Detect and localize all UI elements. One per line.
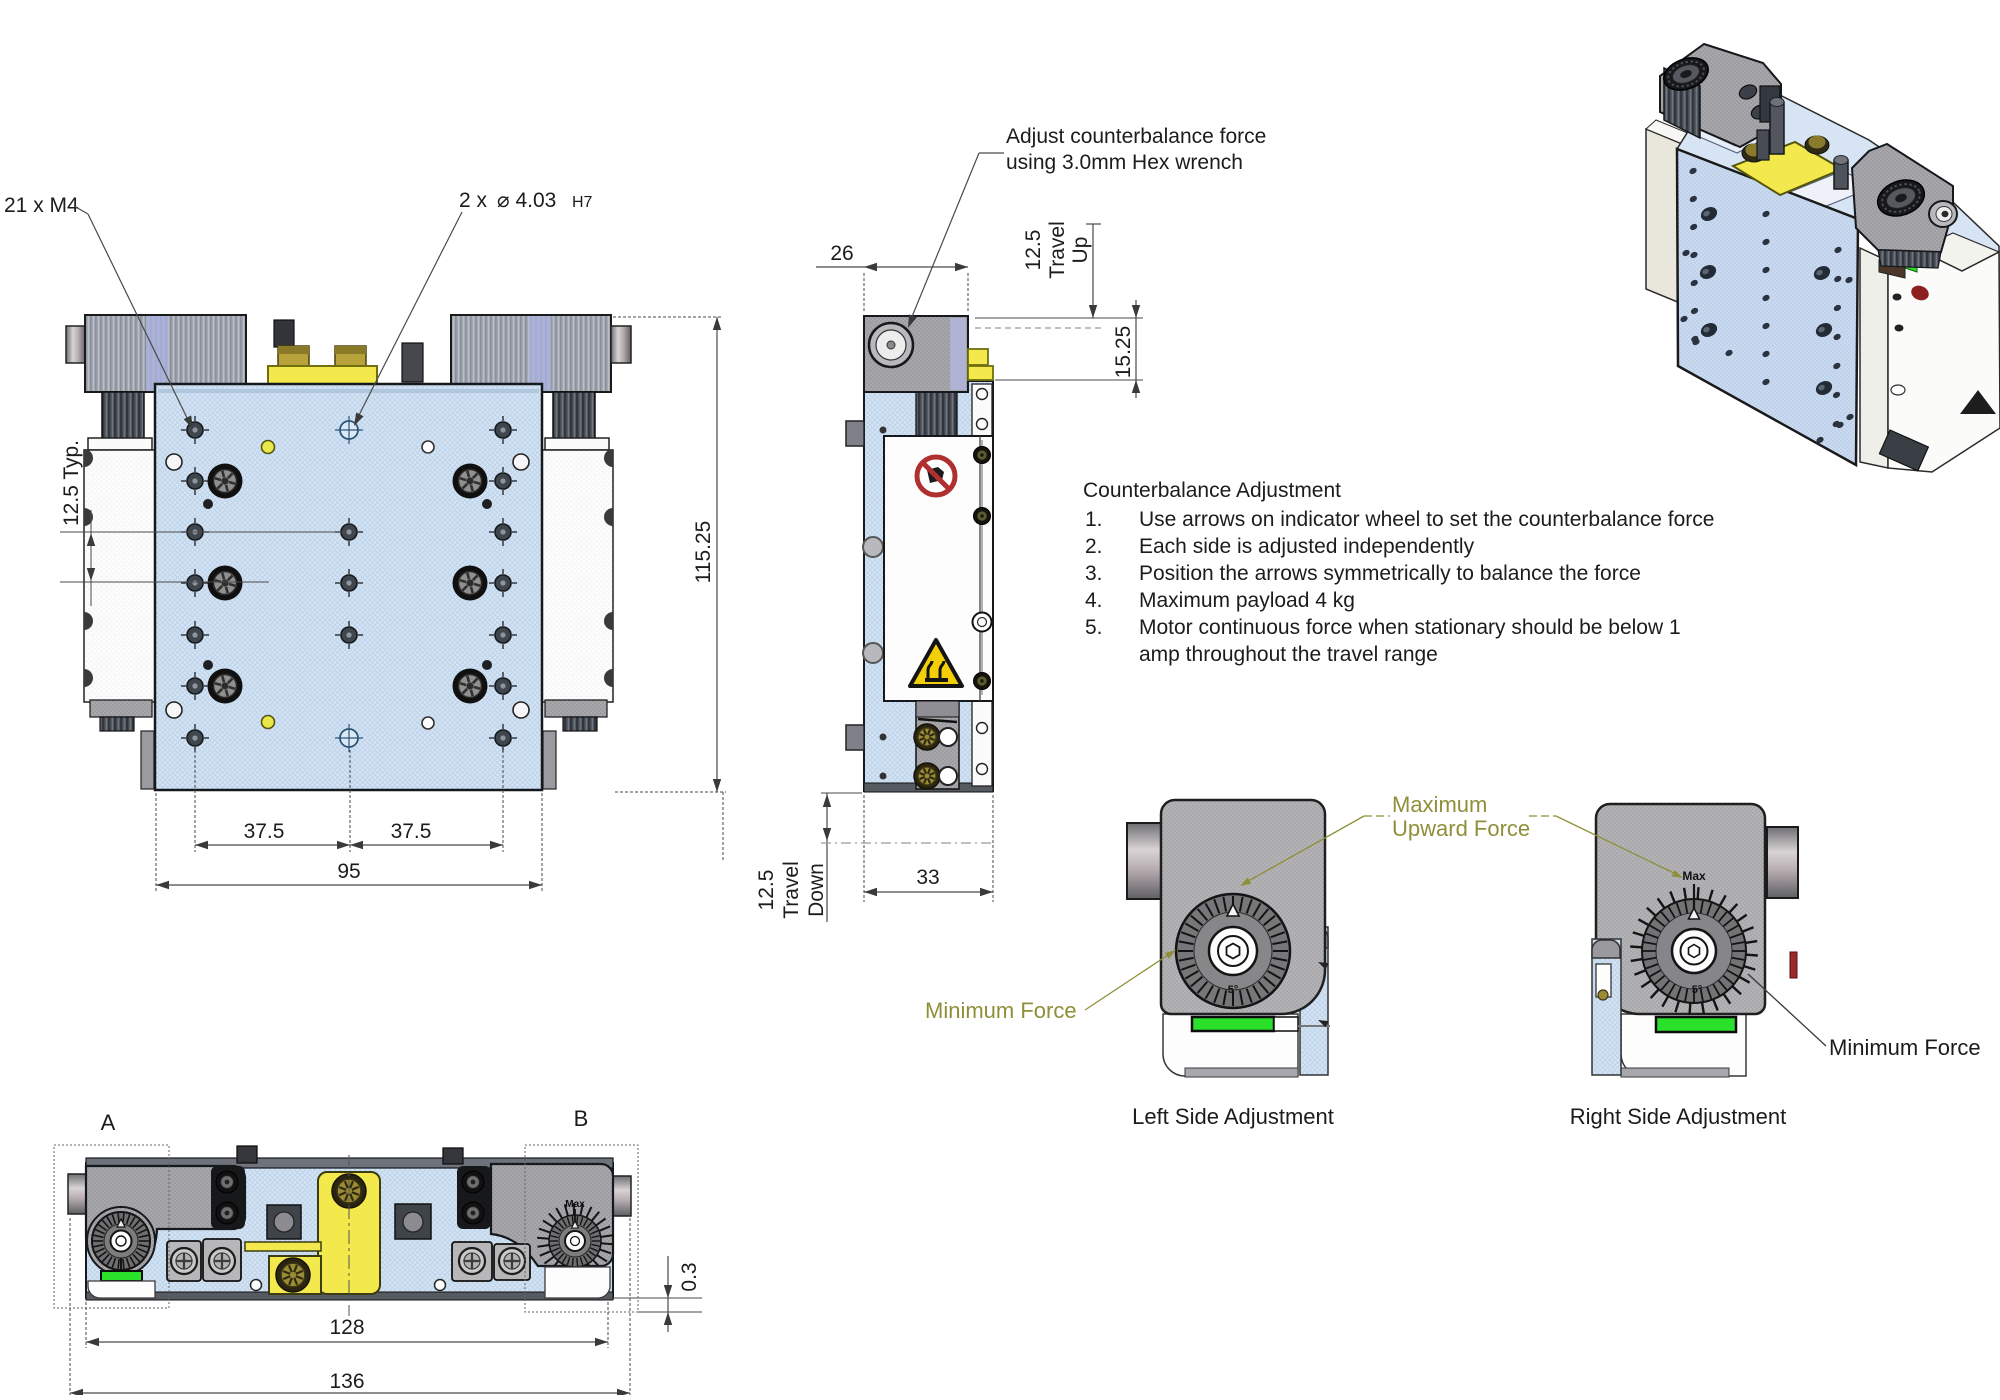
svg-text:A: A <box>101 1110 116 1135</box>
svg-text:Minimum Force: Minimum Force <box>1829 1035 1981 1060</box>
svg-text:37.5: 37.5 <box>391 820 432 843</box>
svg-text:1.: 1. <box>1085 508 1103 531</box>
svg-text:Max: Max <box>565 1199 585 1210</box>
svg-text:Right Side Adjustment: Right Side Adjustment <box>1570 1104 1786 1129</box>
svg-text:Down: Down <box>805 863 828 917</box>
svg-text:B: B <box>574 1106 589 1131</box>
svg-text:amp throughout the travel rang: amp throughout the travel range <box>1139 643 1438 666</box>
svg-text:Upward Force: Upward Force <box>1392 816 1530 841</box>
svg-text:Up: Up <box>1069 237 1092 264</box>
svg-text:Position the arrows symmetrica: Position the arrows symmetrically to bal… <box>1139 562 1641 585</box>
svg-text:Max: Max <box>1682 869 1706 883</box>
svg-text:37.5: 37.5 <box>244 820 285 843</box>
svg-text:15.25: 15.25 <box>1112 326 1135 379</box>
svg-text:12.5: 12.5 <box>1022 230 1045 271</box>
svg-text:Left Side Adjustment: Left Side Adjustment <box>1132 1104 1334 1129</box>
svg-text:4.: 4. <box>1085 589 1103 612</box>
svg-text:Maximum payload 4 kg: Maximum payload 4 kg <box>1139 589 1355 612</box>
svg-text:21 x M4: 21 x M4 <box>4 194 79 217</box>
svg-text:Travel: Travel <box>1046 221 1069 279</box>
svg-text:3.: 3. <box>1085 562 1103 585</box>
svg-text:Each side is adjusted independ: Each side is adjusted independently <box>1139 535 1475 558</box>
svg-text:12.5: 12.5 <box>755 870 778 911</box>
svg-text:Use arrows on indicator wheel: Use arrows on indicator wheel to set the… <box>1139 508 1714 531</box>
svg-text:5.: 5. <box>1085 616 1103 639</box>
svg-text:Minimum Force: Minimum Force <box>925 998 1077 1023</box>
svg-text:95: 95 <box>337 860 360 883</box>
svg-text:Travel: Travel <box>780 861 803 919</box>
svg-text:Counterbalance Adjustment: Counterbalance Adjustment <box>1083 479 1341 502</box>
svg-text:33: 33 <box>916 866 939 889</box>
svg-text:2.: 2. <box>1085 535 1103 558</box>
svg-text:Maximum: Maximum <box>1392 792 1487 817</box>
svg-text:115.25: 115.25 <box>692 521 715 584</box>
svg-text:Adjust counterbalance force: Adjust counterbalance force <box>1006 125 1266 148</box>
svg-text:5°: 5° <box>1228 984 1239 996</box>
svg-text:H7: H7 <box>572 194 593 211</box>
svg-text:136: 136 <box>329 1370 364 1393</box>
svg-text:2 x: 2 x <box>459 189 488 212</box>
svg-text:using 3.0mm Hex wrench: using 3.0mm Hex wrench <box>1006 151 1243 174</box>
svg-text:26: 26 <box>830 242 853 265</box>
svg-text:0.3: 0.3 <box>678 1262 701 1291</box>
svg-text:5°: 5° <box>1692 984 1703 996</box>
svg-text:12.5 Typ.: 12.5 Typ. <box>60 440 83 526</box>
svg-text:⌀ 4.03: ⌀ 4.03 <box>497 189 556 212</box>
svg-text:Motor continuous force when st: Motor continuous force when stationary s… <box>1139 616 1681 639</box>
svg-text:128: 128 <box>329 1316 364 1339</box>
